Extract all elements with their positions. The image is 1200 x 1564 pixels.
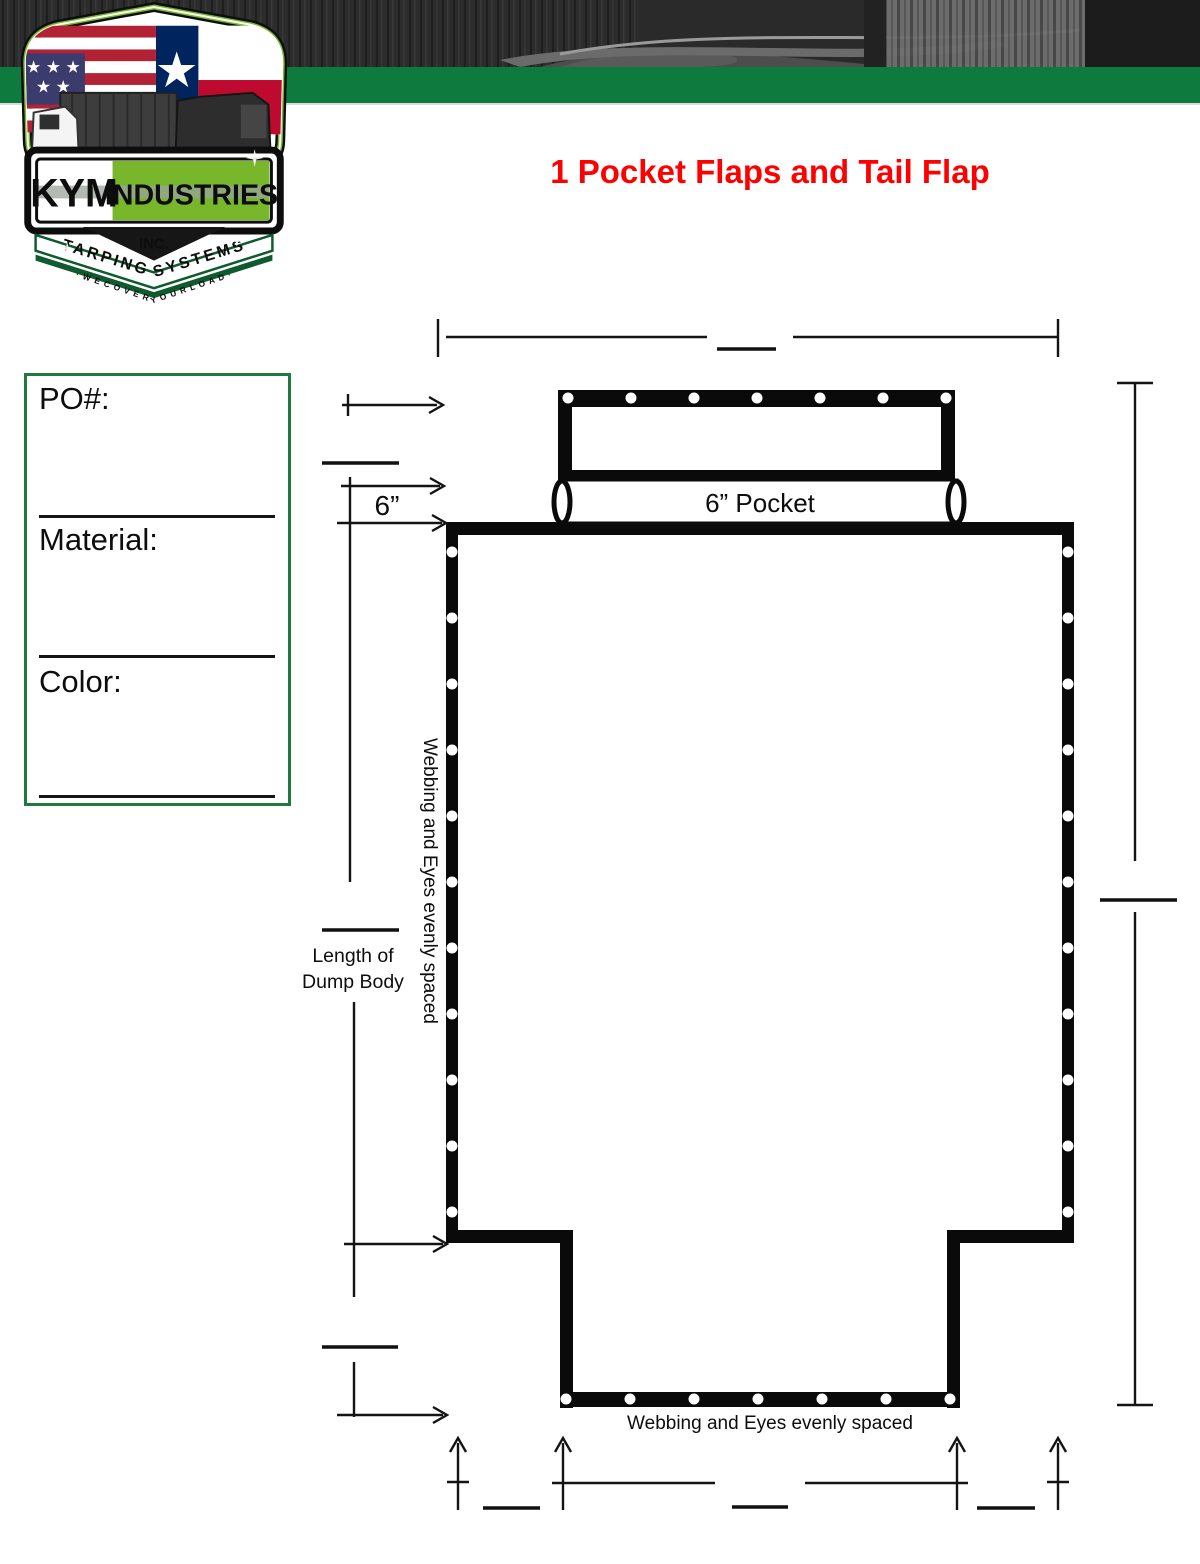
six-inch-label: 6” xyxy=(375,490,400,521)
grommet xyxy=(1063,745,1074,756)
grommet xyxy=(447,745,458,756)
grommet xyxy=(878,393,889,404)
pocket-label: 6” Pocket xyxy=(705,488,816,518)
top-width-dimension xyxy=(438,319,1058,357)
webbing-left-label: Webbing and Eyes evenly spaced xyxy=(419,738,440,1024)
grommet xyxy=(447,1207,458,1218)
grommet xyxy=(447,1075,458,1086)
grommet xyxy=(815,393,826,404)
grommet xyxy=(625,1394,636,1405)
flap-right-edge xyxy=(947,1230,960,1408)
grommet xyxy=(689,393,700,404)
tarp-diagram: 6” Pocket Webbing and Eyes evenly spaced… xyxy=(0,0,1200,1564)
grommet xyxy=(881,1394,892,1405)
grommet xyxy=(447,679,458,690)
grommet xyxy=(817,1394,828,1405)
grommet xyxy=(626,393,637,404)
grommet xyxy=(1063,811,1074,822)
pocket-opening-right xyxy=(948,481,964,523)
tail-flap-interior xyxy=(572,407,941,470)
body-left-step xyxy=(446,1230,573,1243)
bottom-dimension-row xyxy=(447,1438,1069,1510)
grommet xyxy=(1063,679,1074,690)
tarp-body xyxy=(446,522,1074,1408)
grommet xyxy=(1063,1207,1074,1218)
grommet xyxy=(1063,547,1074,558)
grommet xyxy=(1063,1075,1074,1086)
grommet xyxy=(447,943,458,954)
grommet xyxy=(447,547,458,558)
grommet xyxy=(945,1394,956,1405)
tail-flap xyxy=(558,390,955,480)
grommet xyxy=(447,613,458,624)
grommet xyxy=(1063,613,1074,624)
webbing-bottom-label: Webbing and Eyes evenly spaced xyxy=(627,1413,913,1434)
right-dimension-column xyxy=(1100,383,1177,1405)
pocket-band: 6” Pocket xyxy=(554,480,964,523)
grommet xyxy=(1063,1141,1074,1152)
grommet xyxy=(447,811,458,822)
grommet xyxy=(753,1394,764,1405)
grommet xyxy=(1063,877,1074,888)
grommet xyxy=(447,1141,458,1152)
grommet xyxy=(1063,943,1074,954)
grommet xyxy=(561,1394,572,1405)
grommet xyxy=(447,877,458,888)
grommet xyxy=(447,1009,458,1020)
body-right-step xyxy=(947,1230,1074,1243)
grommet xyxy=(752,393,763,404)
length-label-line2: Dump Body xyxy=(302,971,404,993)
grommet xyxy=(941,393,952,404)
length-label-line1: Length of xyxy=(312,945,394,967)
flap-left-edge xyxy=(560,1230,573,1408)
grommet xyxy=(563,393,574,404)
body-top-edge xyxy=(446,522,1074,535)
grommet xyxy=(1063,1009,1074,1020)
grommet xyxy=(689,1394,700,1405)
pocket-opening-left xyxy=(554,481,570,523)
